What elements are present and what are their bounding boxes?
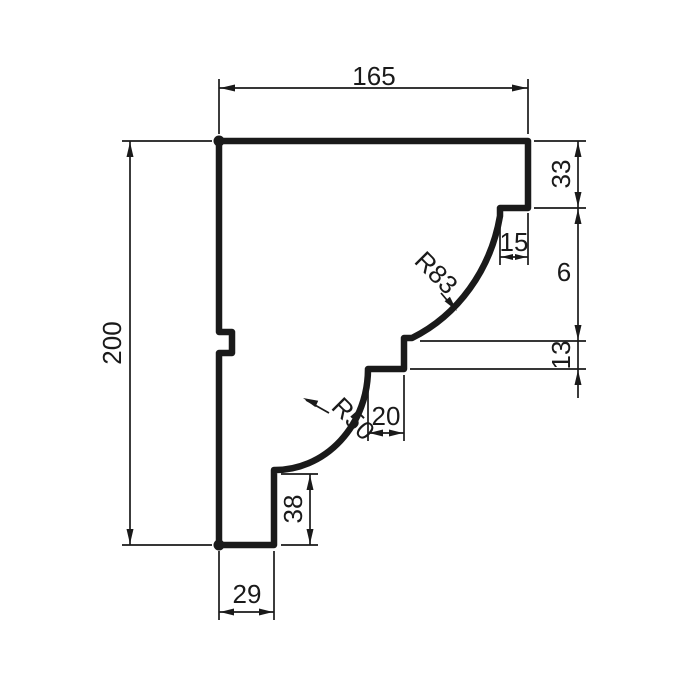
dim-right-top-height: 33 [546,160,576,189]
dim-lower-face-height: 38 [278,495,308,524]
technical-drawing: 165 200 33 6 13 15 20 38 29 R83 R50 [0,0,686,686]
arrowheads [127,85,582,616]
corner-node-bottom-left [214,540,225,551]
dim-overall-width: 165 [352,61,395,91]
radius-label-lower: R50 [326,391,381,446]
dim-band-height: 13 [546,341,576,370]
dim-bottom-width: 29 [233,579,262,609]
dim-right-mid-height: 6 [557,257,571,287]
dimension-lines [130,88,578,612]
profile-outline [219,141,528,545]
extension-lines [122,79,586,620]
dim-step-width: 15 [500,227,529,257]
radius-label-upper: R83 [409,245,464,300]
corner-node-top-left [214,136,225,147]
drawing-canvas: 165 200 33 6 13 15 20 38 29 R83 R50 [0,0,686,686]
dim-overall-height: 200 [97,321,127,364]
